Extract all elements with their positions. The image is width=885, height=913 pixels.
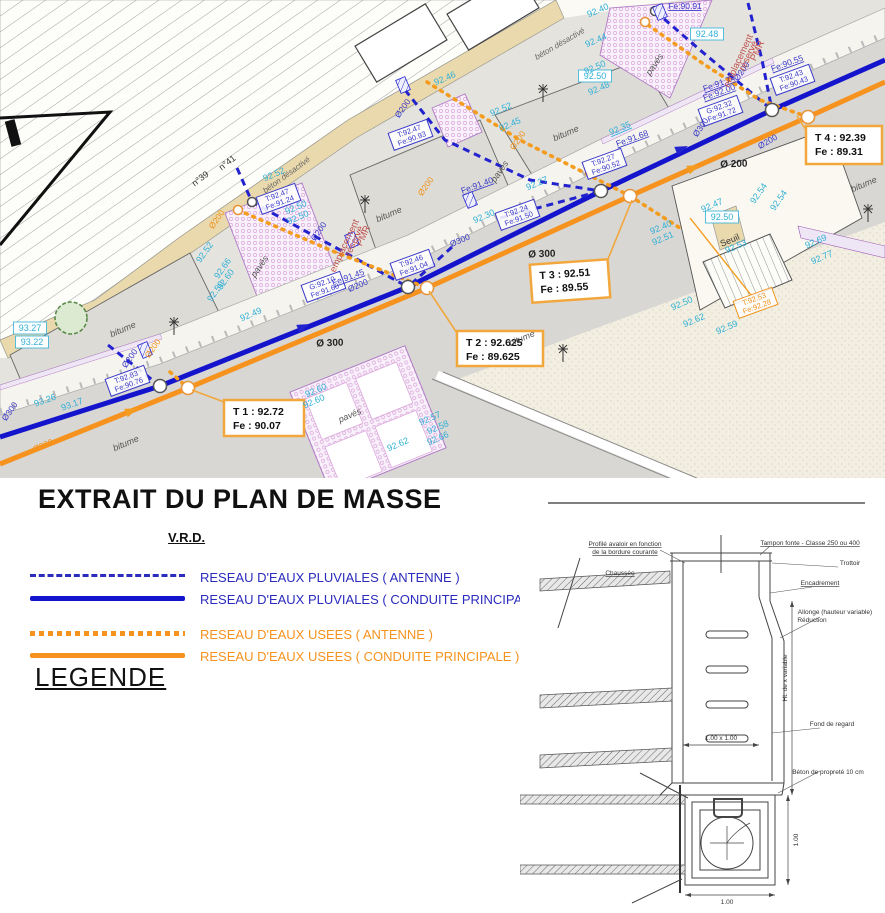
title-block: EXTRAIT DU PLAN DE MASSE V.R.D. RESEAU D… (0, 478, 520, 913)
legend-item: RESEAU D'EAUX PLUVIALES ( ANTENNE ) (30, 570, 550, 584)
page-title: EXTRAIT DU PLAN DE MASSE (38, 484, 442, 515)
regard-avaloir-detail: Profilé avaloir en fonctionde la bordure… (520, 483, 885, 913)
manhole-eu (624, 190, 637, 203)
legend-item: RESEAU D'EAUX USEES ( ANTENNE ) (30, 627, 550, 641)
manhole-eu (802, 111, 815, 124)
legend-item: RESEAU D'EAUX USEES ( CONDUITE PRINCIPAL… (30, 649, 550, 663)
plan-label: 93.22 (21, 337, 44, 347)
manhole-ep (595, 185, 608, 198)
legend-item: RESEAU D'EAUX PLUVIALES ( CONDUITE PRINC… (30, 592, 550, 606)
tree-symbol (55, 302, 87, 334)
detail-label: Encadrement (801, 580, 840, 587)
page: T:92.83Fe:90.76T:92.47Fe:91.24T:92.47Fe:… (0, 0, 885, 913)
vrd-label: V.R.D. (168, 530, 205, 545)
detail-label: Trottoir (840, 560, 861, 567)
legend-swatch-odot (30, 631, 185, 636)
manhole-ep (154, 380, 167, 393)
svg-text:Fe : 89.625: Fe : 89.625 (466, 351, 520, 363)
manhole-eu (234, 206, 243, 215)
plan-label: Ø 300 (528, 249, 556, 261)
legend-title: LEGENDE (35, 662, 166, 693)
manhole-eu (421, 282, 434, 295)
plan-label: 92.50 (711, 212, 734, 222)
detail-label: Ht. de x variable (782, 654, 789, 701)
site-plan: T:92.83Fe:90.76T:92.47Fe:91.24T:92.47Fe:… (0, 0, 885, 478)
plan-label: Ø 300 (316, 338, 344, 350)
detail-label: Chaussée (605, 570, 635, 577)
detail-label: Profilé avaloir en fonction (589, 541, 662, 548)
legend-swatch-bdash (30, 574, 185, 577)
legend-swatch-bsolid (30, 596, 185, 601)
svg-text:Fe : 89.31: Fe : 89.31 (815, 146, 863, 158)
detail-label: 1.00 (793, 833, 800, 846)
manhole-eu (641, 18, 650, 27)
legend-label: RESEAU D'EAUX PLUVIALES ( ANTENNE ) (200, 570, 460, 585)
detail-drawing: Profilé avaloir en fonctionde la bordure… (520, 483, 885, 913)
legend-label: RESEAU D'EAUX USEES ( CONDUITE PRINCIPAL… (200, 649, 519, 664)
detail-label: 1.00 (721, 899, 734, 906)
manhole-eu (182, 382, 195, 395)
plan-label: Ø 200 (720, 159, 748, 171)
detail-label: Béton de propreté 10 cm (792, 769, 864, 776)
legend-swatch-osolid (30, 653, 185, 658)
svg-text:Fe : 90.07: Fe : 90.07 (233, 420, 281, 432)
plan-label: 92.48 (696, 29, 719, 39)
svg-text:T 1 : 92.72: T 1 : 92.72 (233, 406, 284, 418)
detail-label: Réduction (797, 617, 827, 624)
detail-label: Fond de regard (810, 721, 855, 728)
plan-label: 93.27 (19, 323, 42, 333)
detail-label: 1.00 x 1.00 (705, 735, 738, 742)
legend-label: RESEAU D'EAUX PLUVIALES ( CONDUITE PRINC… (200, 592, 546, 607)
manhole-ep (402, 281, 415, 294)
svg-text:T 4 : 92.39: T 4 : 92.39 (815, 132, 866, 144)
legend-label: RESEAU D'EAUX USEES ( ANTENNE ) (200, 627, 433, 642)
plan-label: Fe:90.91 (668, 1, 702, 11)
manhole-ep (766, 104, 779, 117)
site-plan-drawing: T:92.83Fe:90.76T:92.47Fe:91.24T:92.47Fe:… (0, 0, 885, 478)
detail-label: Tampon fonte - Classe 250 ou 400 (760, 540, 860, 547)
detail-label: de la bordure courante (592, 549, 658, 556)
detail-label: Allonge (hauteur variable) (798, 609, 872, 616)
manhole-ep (248, 198, 257, 207)
